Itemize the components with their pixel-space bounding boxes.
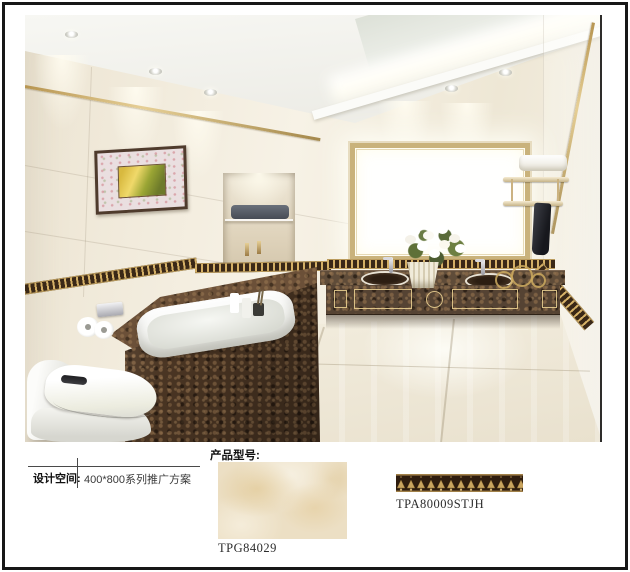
wall-niche — [223, 173, 295, 267]
bathroom-rendering — [25, 15, 602, 442]
black-towel — [532, 203, 552, 256]
product-model-label: 产品型号: — [210, 447, 260, 463]
paper-roll-icon — [94, 321, 114, 339]
wall-picture-frame — [94, 145, 188, 215]
downlight-icon — [499, 69, 512, 76]
strip-product-code: TPA80009STJH — [396, 497, 484, 512]
holder-bracket — [96, 302, 123, 318]
towel-rack — [503, 163, 569, 227]
toiletry-bottle-icon — [230, 293, 239, 313]
downlight-icon — [65, 31, 78, 38]
candelabra-icon — [493, 261, 543, 293]
white-lilies — [409, 227, 420, 236]
design-space-value: 400*800系列推广方案 — [84, 471, 191, 487]
tile-sample-swatch — [218, 462, 347, 539]
downlight-icon — [204, 89, 217, 96]
divider-line — [28, 466, 200, 467]
candle-holder-icon — [245, 243, 249, 256]
border-strip-pattern — [396, 474, 523, 492]
smart-toilet — [25, 350, 160, 442]
waist-border-strip — [25, 257, 198, 294]
white-towel — [519, 155, 567, 171]
picture-artwork — [118, 163, 167, 198]
gold-inlay — [354, 289, 412, 309]
toilet-paper-holder — [77, 303, 127, 353]
glass-shelf — [225, 219, 293, 221]
border-strip-swatch — [396, 474, 523, 492]
faucet-icon — [481, 259, 485, 275]
design-space-label: 设计空间: — [33, 470, 81, 486]
gold-inlay-circle — [426, 291, 443, 308]
niche-towel — [231, 205, 289, 219]
catalog-page: 设计空间: 400*800系列推广方案 产品型号: TPG84029 TPA80… — [0, 0, 630, 572]
incense-pot-icon — [253, 303, 264, 316]
design-space-block: 设计空间: 400*800系列推广方案 — [28, 458, 208, 500]
gold-inlay — [542, 290, 557, 308]
candle-holder-icon — [257, 241, 261, 254]
rack-bar — [503, 201, 563, 206]
gold-inlay — [334, 290, 347, 308]
tile-product-code: TPG84029 — [218, 541, 277, 556]
vanity-shadow — [326, 315, 560, 329]
faucet-icon — [389, 257, 393, 273]
downlight-icon — [445, 85, 458, 92]
downlight-icon — [149, 68, 162, 75]
